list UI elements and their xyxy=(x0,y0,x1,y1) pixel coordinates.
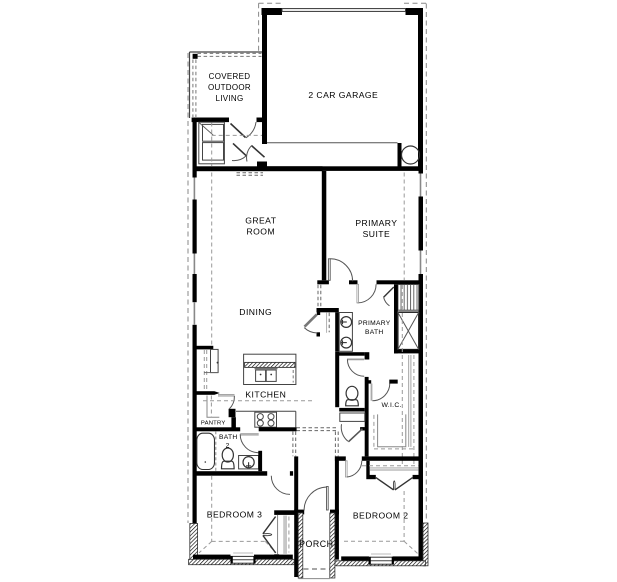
svg-text:KITCHEN: KITCHEN xyxy=(245,390,286,400)
svg-text:PRIMARY: PRIMARY xyxy=(355,218,397,228)
svg-text:PORCH: PORCH xyxy=(299,539,333,549)
svg-text:BATH: BATH xyxy=(365,329,384,336)
svg-text:COVERED: COVERED xyxy=(209,72,251,81)
svg-text:BATH: BATH xyxy=(219,434,238,441)
svg-text:PANTRY: PANTRY xyxy=(201,421,226,427)
svg-text:DINING: DINING xyxy=(239,307,272,317)
svg-text:ROOM: ROOM xyxy=(247,227,276,237)
svg-text:OUTDOOR: OUTDOOR xyxy=(208,83,251,92)
svg-text:BEDROOM 2: BEDROOM 2 xyxy=(353,510,409,520)
svg-text:W.I.C.: W.I.C. xyxy=(381,402,401,409)
svg-text:2 CAR GARAGE: 2 CAR GARAGE xyxy=(308,90,378,100)
svg-text:GREAT: GREAT xyxy=(245,216,277,226)
svg-text:BEDROOM 3: BEDROOM 3 xyxy=(207,509,263,519)
svg-text:LIVING: LIVING xyxy=(215,94,243,103)
svg-text:SUITE: SUITE xyxy=(363,229,391,239)
svg-text:PRIMARY: PRIMARY xyxy=(358,320,391,327)
